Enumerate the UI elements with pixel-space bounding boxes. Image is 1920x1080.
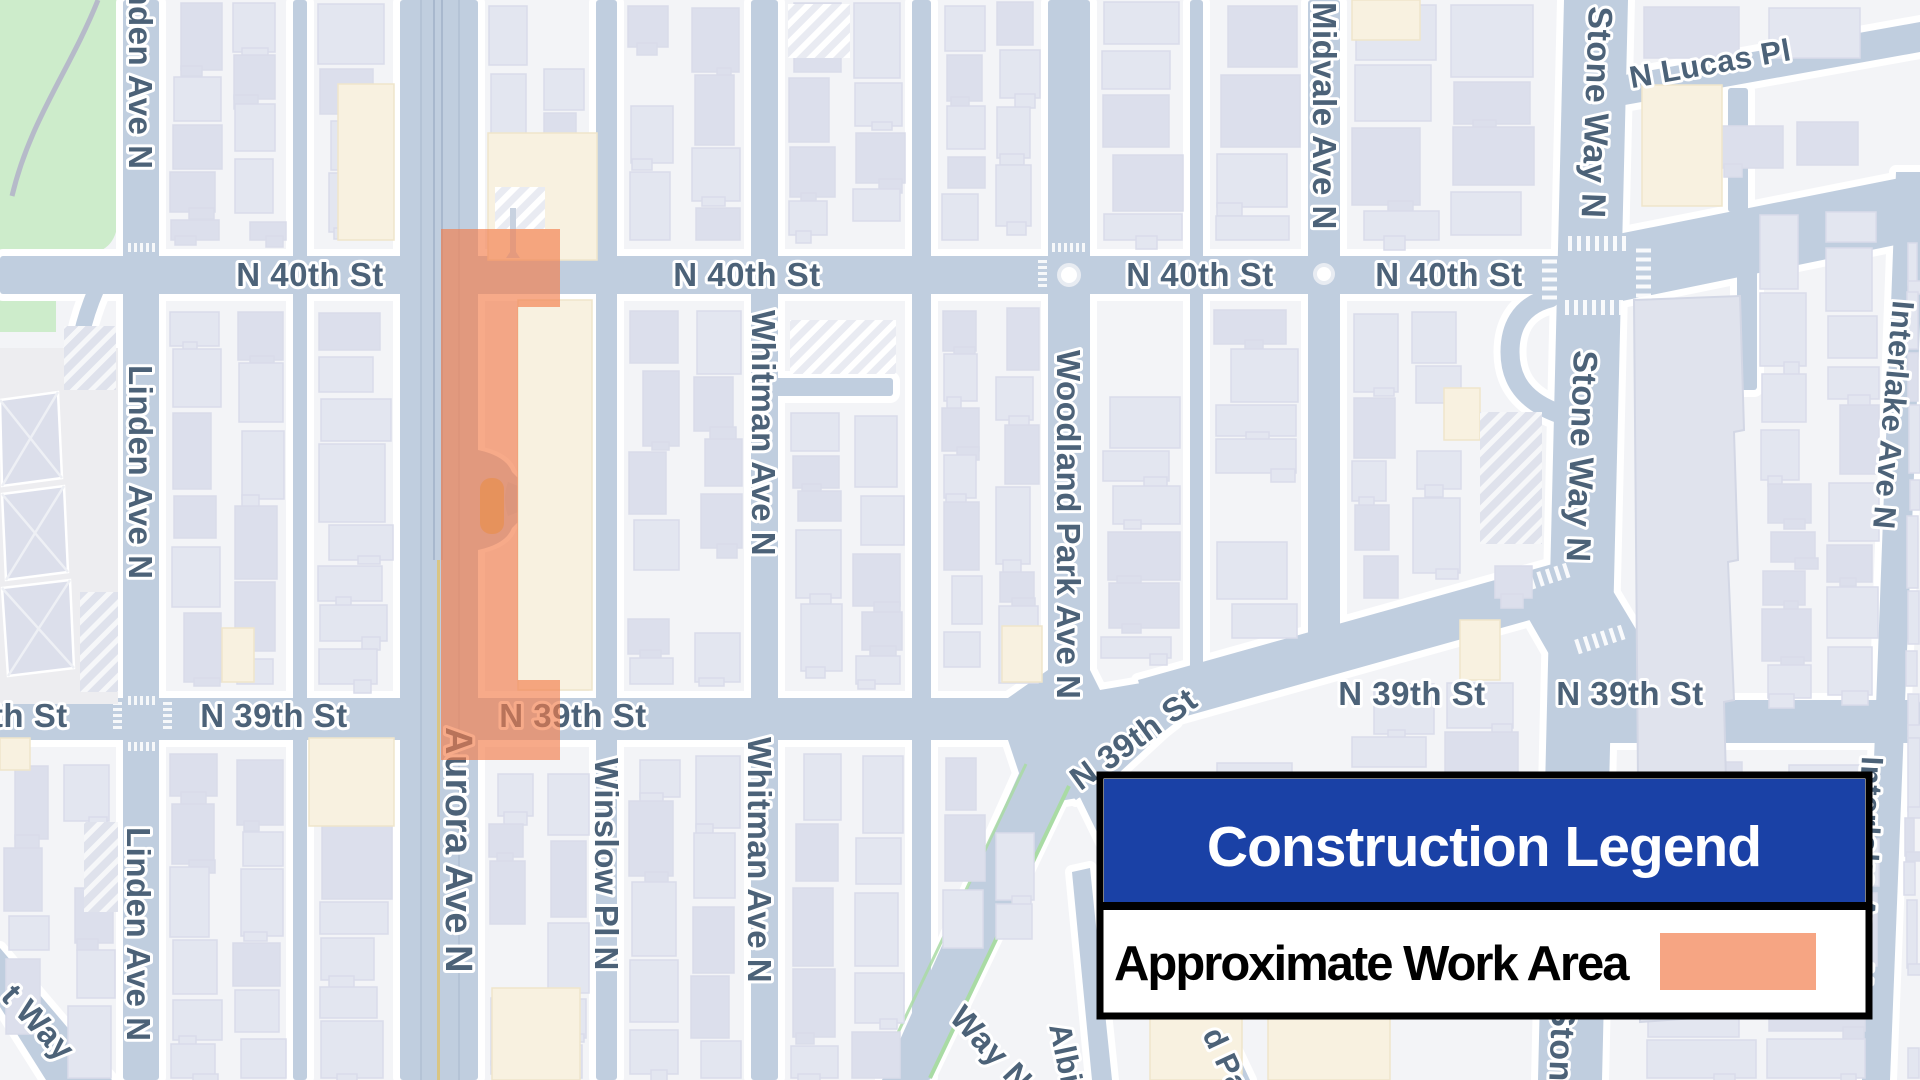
svg-text:Construction Legend: Construction Legend [1207,815,1761,879]
svg-text:Linden Ave N: Linden Ave N [122,0,159,169]
svg-text:Whitman Ave N: Whitman Ave N [741,737,778,983]
svg-text:Stone Way N: Stone Way N [1574,6,1619,219]
svg-text:N 40th St: N 40th St [673,256,821,293]
svg-text:N 39th St: N 39th St [1556,675,1704,712]
svg-text:Linden Ave N: Linden Ave N [120,827,157,1041]
svg-text:N 40th St: N 40th St [1375,256,1523,293]
svg-text:N 39th St: N 39th St [1338,675,1486,712]
svg-text:Winslow Pl N: Winslow Pl N [588,758,625,971]
svg-text:Whitman Ave N: Whitman Ave N [745,310,782,556]
svg-text:Woodland Park Ave N: Woodland Park Ave N [1050,350,1087,699]
svg-text:Midvale Ave N: Midvale Ave N [1306,2,1343,230]
svg-text:Stone Way N: Stone Way N [1559,350,1604,563]
svg-text:Approximate Work Area: Approximate Work Area [1114,937,1630,991]
svg-text:N 39th St: N 39th St [0,697,68,734]
svg-text:Linden Ave N: Linden Ave N [122,365,159,579]
svg-text:N 39th St: N 39th St [200,697,348,734]
svg-text:N 40th St: N 40th St [1126,256,1274,293]
svg-text:N 40th St: N 40th St [236,256,384,293]
svg-text:Aurora Ave N: Aurora Ave N [437,727,479,973]
